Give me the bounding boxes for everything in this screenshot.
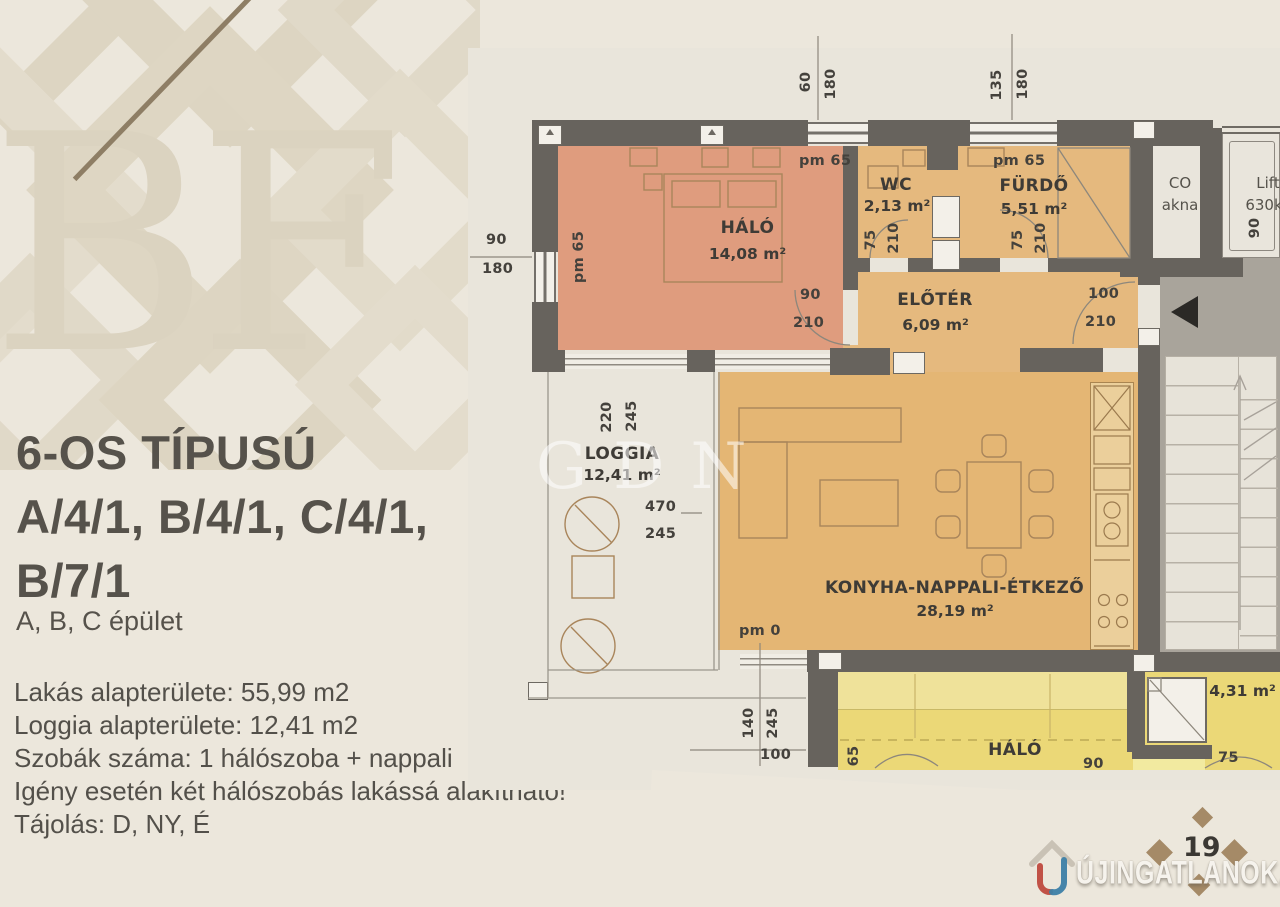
loggia-glass-wall	[565, 354, 687, 369]
page-title-line2: A/4/1, B/4/1, C/4/1,	[16, 488, 516, 546]
dim-label: 60	[798, 60, 814, 104]
dim-label: 210	[1033, 216, 1049, 260]
entrance-arrow-icon	[1171, 296, 1198, 328]
dim-label: pm 0	[739, 623, 781, 639]
stair-flight-right	[1240, 357, 1278, 649]
bath-cabinet	[932, 240, 960, 270]
label-wc: WC	[870, 175, 922, 195]
window	[534, 252, 556, 302]
label-halo: HÁLÓ	[690, 218, 805, 238]
wall	[1155, 652, 1280, 672]
label-wc-area: 2,13 m²	[858, 197, 936, 215]
staircase	[1165, 356, 1277, 650]
dim-label: 100	[760, 747, 791, 763]
label-lift: Lift	[1243, 174, 1280, 192]
wall-marker	[700, 125, 724, 145]
wall	[807, 650, 1155, 672]
detail-orientation: Tájolás: D, NY, É	[14, 808, 634, 840]
window	[970, 122, 1057, 144]
dim-label: 90	[800, 287, 821, 303]
stair-flight-left	[1166, 357, 1239, 649]
dim-label: 90	[1083, 756, 1104, 772]
wall	[1132, 745, 1212, 759]
wall	[532, 120, 808, 146]
brochure-page: BF 6-OS TÍPUSÚ A/4/1, B/4/1, C/4/1, B/7/…	[0, 0, 1280, 907]
dim-label: 245	[645, 526, 676, 542]
shoe-cabinet	[893, 352, 925, 374]
room-eloter	[858, 272, 1138, 348]
wall	[532, 350, 565, 372]
dim-label: 90	[486, 232, 507, 248]
lift-door-lines	[1222, 126, 1280, 134]
dim-label: 210	[793, 315, 824, 331]
label-akna: akna	[1155, 196, 1205, 214]
dim-label: 180	[482, 261, 513, 277]
site-watermark: ÚJINGATLANOK.HU	[1076, 855, 1280, 893]
label-lower-bath-area: 4,31 m²	[1205, 682, 1280, 700]
label-eloter: ELŐTÉR	[885, 290, 985, 310]
label-lower-halo: HÁLÓ	[975, 740, 1055, 760]
wall	[808, 672, 838, 767]
window	[740, 654, 807, 669]
dim-label: pm 65	[993, 153, 1045, 169]
dim-label: 75	[1010, 218, 1026, 262]
wall	[830, 348, 890, 375]
dim-label: pm 65	[571, 227, 587, 287]
room-lower-wardrobe	[838, 672, 1133, 710]
loggia-glass-door	[715, 354, 830, 369]
dim-label: 100	[1088, 286, 1119, 302]
wall	[1020, 348, 1103, 372]
page-title-line3: B/7/1	[16, 552, 516, 610]
washing-machine	[932, 196, 960, 238]
label-furdo: FÜRDŐ	[995, 176, 1073, 196]
building-subtitle: A, B, C épület	[16, 606, 183, 637]
wall	[927, 146, 958, 170]
wall	[687, 350, 715, 372]
dim-label: 135	[989, 63, 1005, 107]
wall	[532, 302, 558, 352]
label-co: CO	[1160, 174, 1200, 192]
page-title-line1: 6-OS TÍPUSÚ	[16, 424, 516, 482]
dim-label: pm 65	[799, 153, 851, 169]
decor-pattern: BF	[0, 0, 480, 470]
wall-marker	[528, 682, 548, 700]
wall-marker	[538, 125, 562, 145]
label-halo-area: 14,08 m²	[680, 245, 815, 263]
kitchen-counter	[1090, 382, 1134, 650]
dim-label: 65	[846, 734, 862, 778]
wall-marker	[1138, 328, 1160, 346]
bf-monogram: BF	[0, 96, 391, 396]
dim-label: 210	[886, 216, 902, 260]
corridor-gray	[1243, 258, 1280, 277]
dim-label: 180	[823, 62, 839, 106]
dim-label: 245	[765, 701, 781, 745]
dim-lift-90: 90	[1247, 206, 1263, 250]
wall	[868, 120, 970, 146]
wall-marker	[1133, 121, 1155, 139]
wall	[1138, 272, 1160, 285]
dim-label: 180	[1015, 62, 1031, 106]
dim-label: 75	[1218, 750, 1239, 766]
window	[808, 122, 868, 144]
label-konyha-area: 28,19 m²	[905, 602, 1005, 620]
dim-label: 210	[1085, 314, 1116, 330]
dim-label: 140	[741, 701, 757, 745]
gdn-watermark: GDN	[536, 430, 772, 504]
label-konyha: KONYHA-NAPPALI-ÉTKEZŐ	[812, 578, 1097, 598]
dim-label: 75	[863, 218, 879, 262]
wall	[1130, 120, 1153, 260]
wall	[1127, 672, 1145, 752]
wall-marker	[818, 652, 842, 670]
wall	[1200, 128, 1222, 262]
wall	[1138, 340, 1160, 672]
wall-marker	[1133, 654, 1155, 672]
label-eloter-area: 6,09 m²	[893, 316, 978, 334]
